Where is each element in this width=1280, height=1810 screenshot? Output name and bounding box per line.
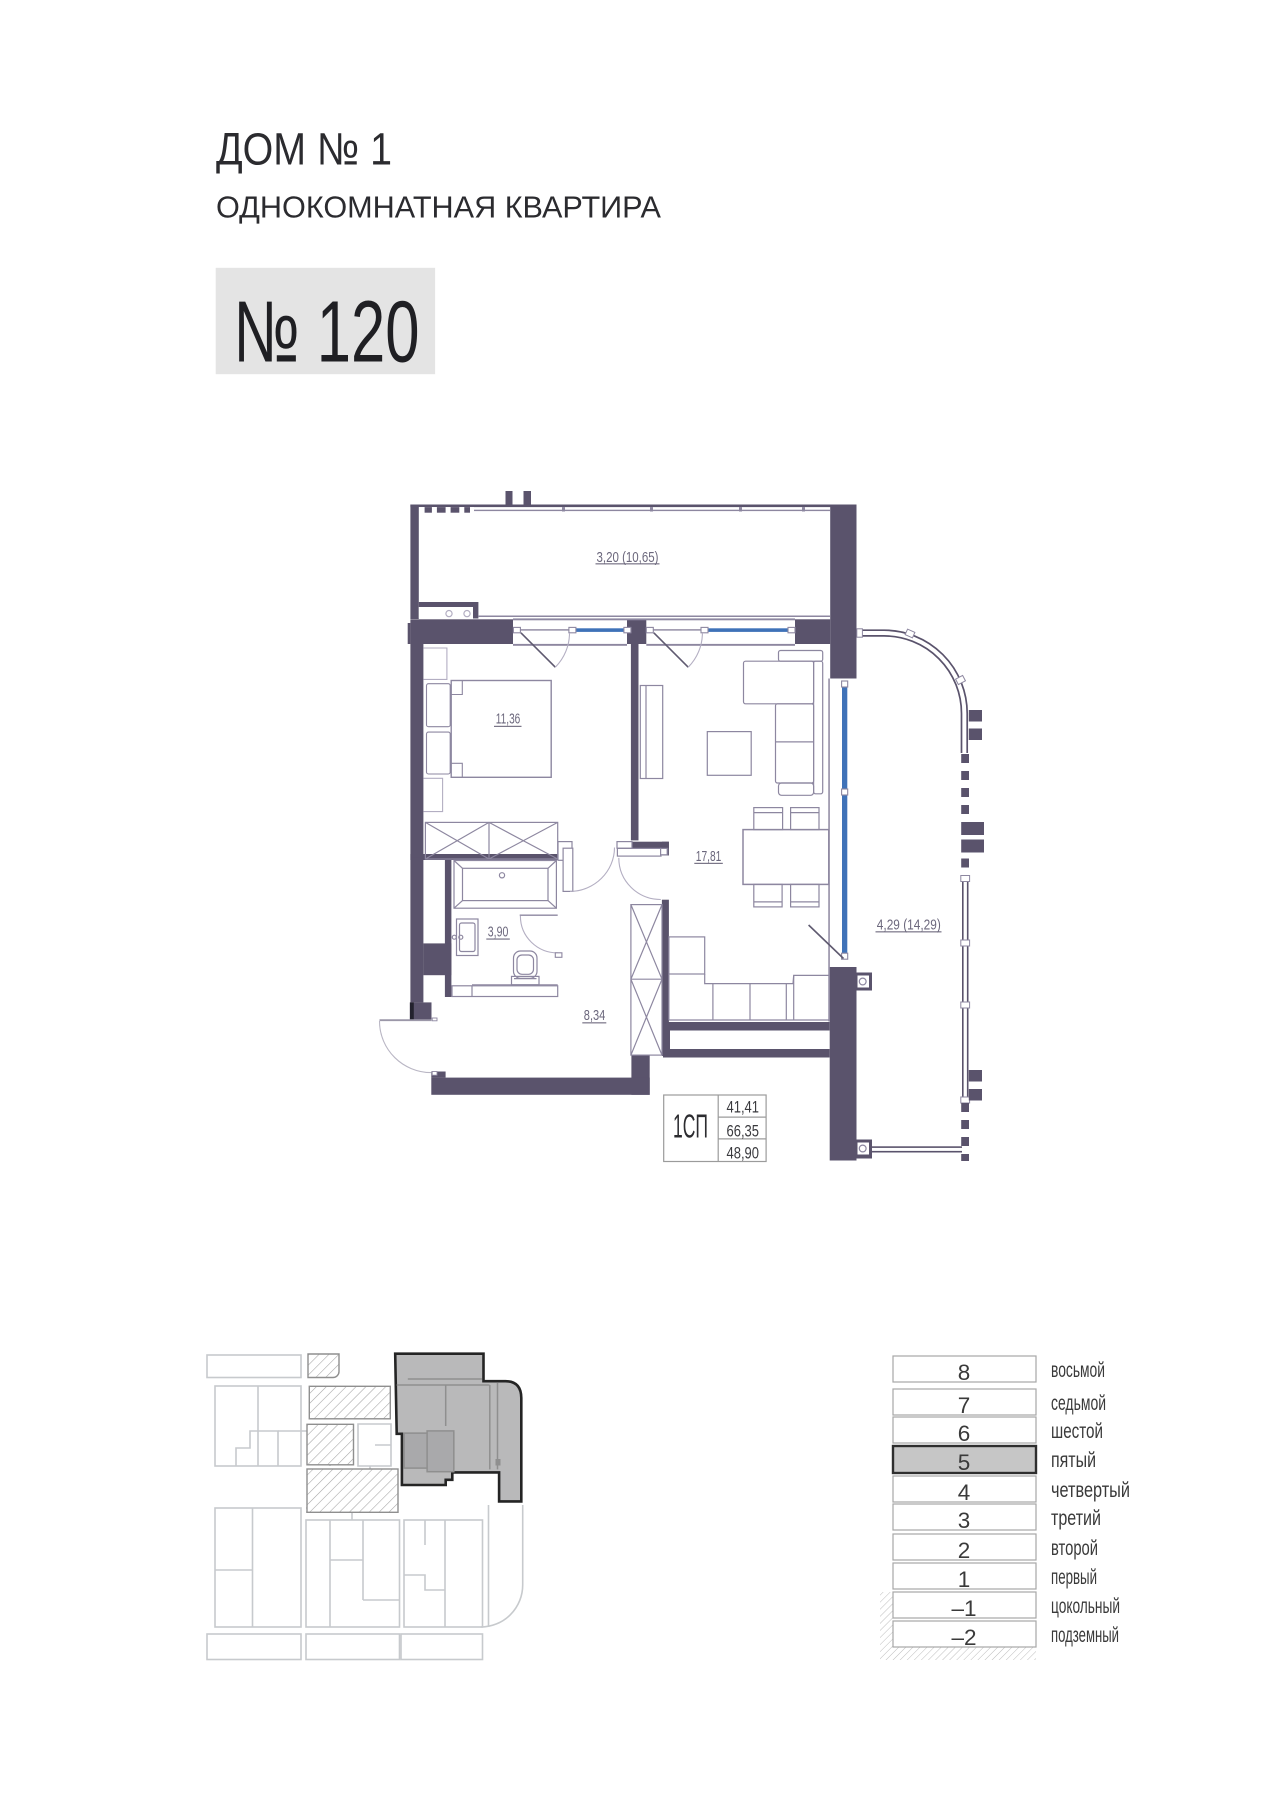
svg-text:первый: первый bbox=[1051, 1565, 1097, 1589]
svg-text:второй: второй bbox=[1051, 1536, 1098, 1560]
svg-text:3: 3 bbox=[958, 1508, 971, 1533]
svg-text:4,29 (14,29): 4,29 (14,29) bbox=[877, 918, 941, 934]
svg-text:пятый: пятый bbox=[1051, 1448, 1096, 1472]
svg-text:цокольный: цокольный bbox=[1051, 1594, 1120, 1618]
svg-text:8: 8 bbox=[958, 1360, 971, 1385]
svg-text:6: 6 bbox=[958, 1421, 971, 1446]
svg-text:3,90: 3,90 bbox=[488, 925, 509, 941]
svg-text:1: 1 bbox=[958, 1567, 971, 1592]
svg-text:41,41: 41,41 bbox=[727, 1099, 760, 1117]
svg-text:17,81: 17,81 bbox=[696, 849, 722, 865]
svg-text:7: 7 bbox=[958, 1393, 971, 1418]
svg-text:шестой: шестой bbox=[1051, 1419, 1103, 1443]
svg-text:ОДНОКОМНАТНАЯ КВАРТИРА: ОДНОКОМНАТНАЯ КВАРТИРА bbox=[216, 191, 662, 225]
svg-text:–1: –1 bbox=[951, 1596, 976, 1621]
svg-text:1СП: 1СП bbox=[673, 1108, 708, 1145]
svg-text:восьмой: восьмой bbox=[1051, 1358, 1105, 1382]
svg-text:третий: третий bbox=[1051, 1506, 1101, 1530]
svg-text:11,36: 11,36 bbox=[496, 712, 521, 728]
svg-text:66,35: 66,35 bbox=[727, 1122, 760, 1140]
svg-text:8,34: 8,34 bbox=[584, 1008, 606, 1024]
svg-text:№ 120: № 120 bbox=[234, 284, 420, 381]
svg-text:4: 4 bbox=[958, 1480, 971, 1505]
svg-text:подземный: подземный bbox=[1051, 1623, 1119, 1647]
svg-text:2: 2 bbox=[958, 1538, 971, 1563]
svg-text:48,90: 48,90 bbox=[727, 1144, 760, 1162]
svg-text:–2: –2 bbox=[951, 1625, 976, 1650]
svg-text:ДОМ № 1: ДОМ № 1 bbox=[216, 124, 392, 175]
svg-text:седьмой: седьмой bbox=[1051, 1391, 1106, 1415]
svg-text:5: 5 bbox=[958, 1450, 971, 1475]
svg-text:четвертый: четвертый bbox=[1051, 1478, 1130, 1502]
